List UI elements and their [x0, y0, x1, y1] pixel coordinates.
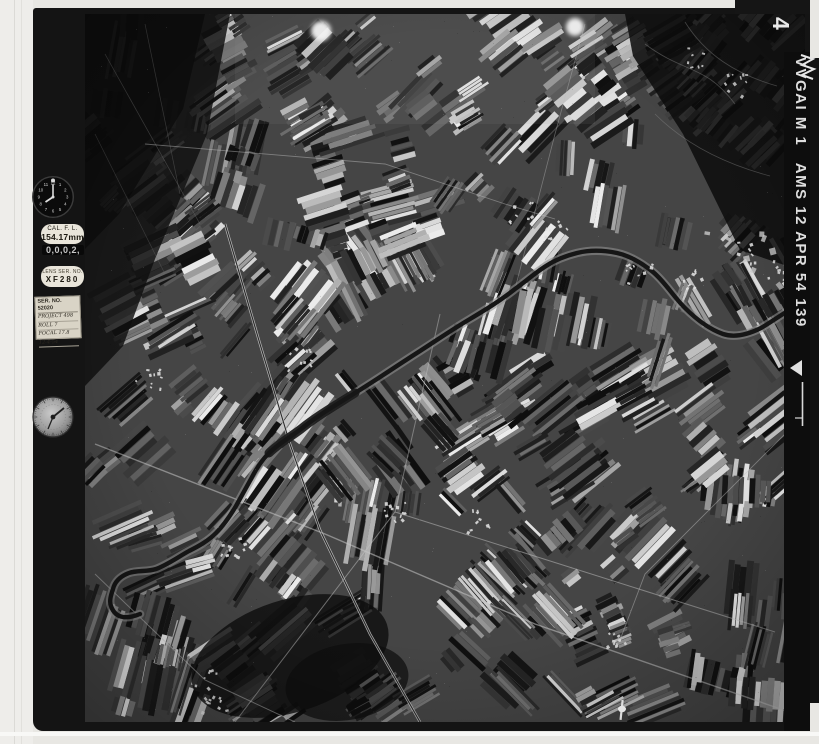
calibrated-focal-length-label: CAL. F. L. 154.17mm	[41, 224, 84, 244]
margin-crease	[21, 0, 22, 744]
fiducial-dot-left	[311, 21, 331, 41]
aerial-photo	[85, 14, 805, 722]
svg-text:10: 10	[38, 187, 43, 192]
margin-bottom-highlight	[0, 732, 819, 736]
margin-crease	[14, 0, 15, 744]
photo-data-card: SER. NO. 52020 PROJECT 498 ROLL 7 FOCAL …	[34, 295, 81, 340]
paper-margin-left	[0, 0, 33, 744]
lens-serial-value: XF280	[41, 275, 84, 284]
camera-clock-dial: 121234567891011	[32, 176, 74, 218]
frame-number: 4	[767, 17, 794, 30]
svg-text:11: 11	[44, 182, 49, 187]
film-edge-bleed-top	[735, 0, 810, 14]
terrain-graphic	[85, 14, 805, 722]
data-card-header: SER. NO. 52020	[37, 297, 77, 313]
altimeter-dial	[32, 396, 74, 438]
data-card-row: 12-4-54	[39, 338, 79, 348]
fiducial-dot-right	[566, 18, 584, 36]
film-zigzag-mark	[799, 53, 817, 81]
aerial-photo-scan-sheet: VVGAI M 1 AMS 12 APR 54 139 4 1212345678…	[0, 0, 819, 744]
frame-counter: 0,0,0,2,	[42, 245, 84, 255]
fiducial-arrow-right	[788, 356, 808, 436]
fiducial-mark-bottom	[614, 698, 630, 722]
lens-serial-label: LENS SER. NO. XF280	[41, 266, 84, 287]
cal-fl-value: 154.17mm	[41, 233, 84, 242]
